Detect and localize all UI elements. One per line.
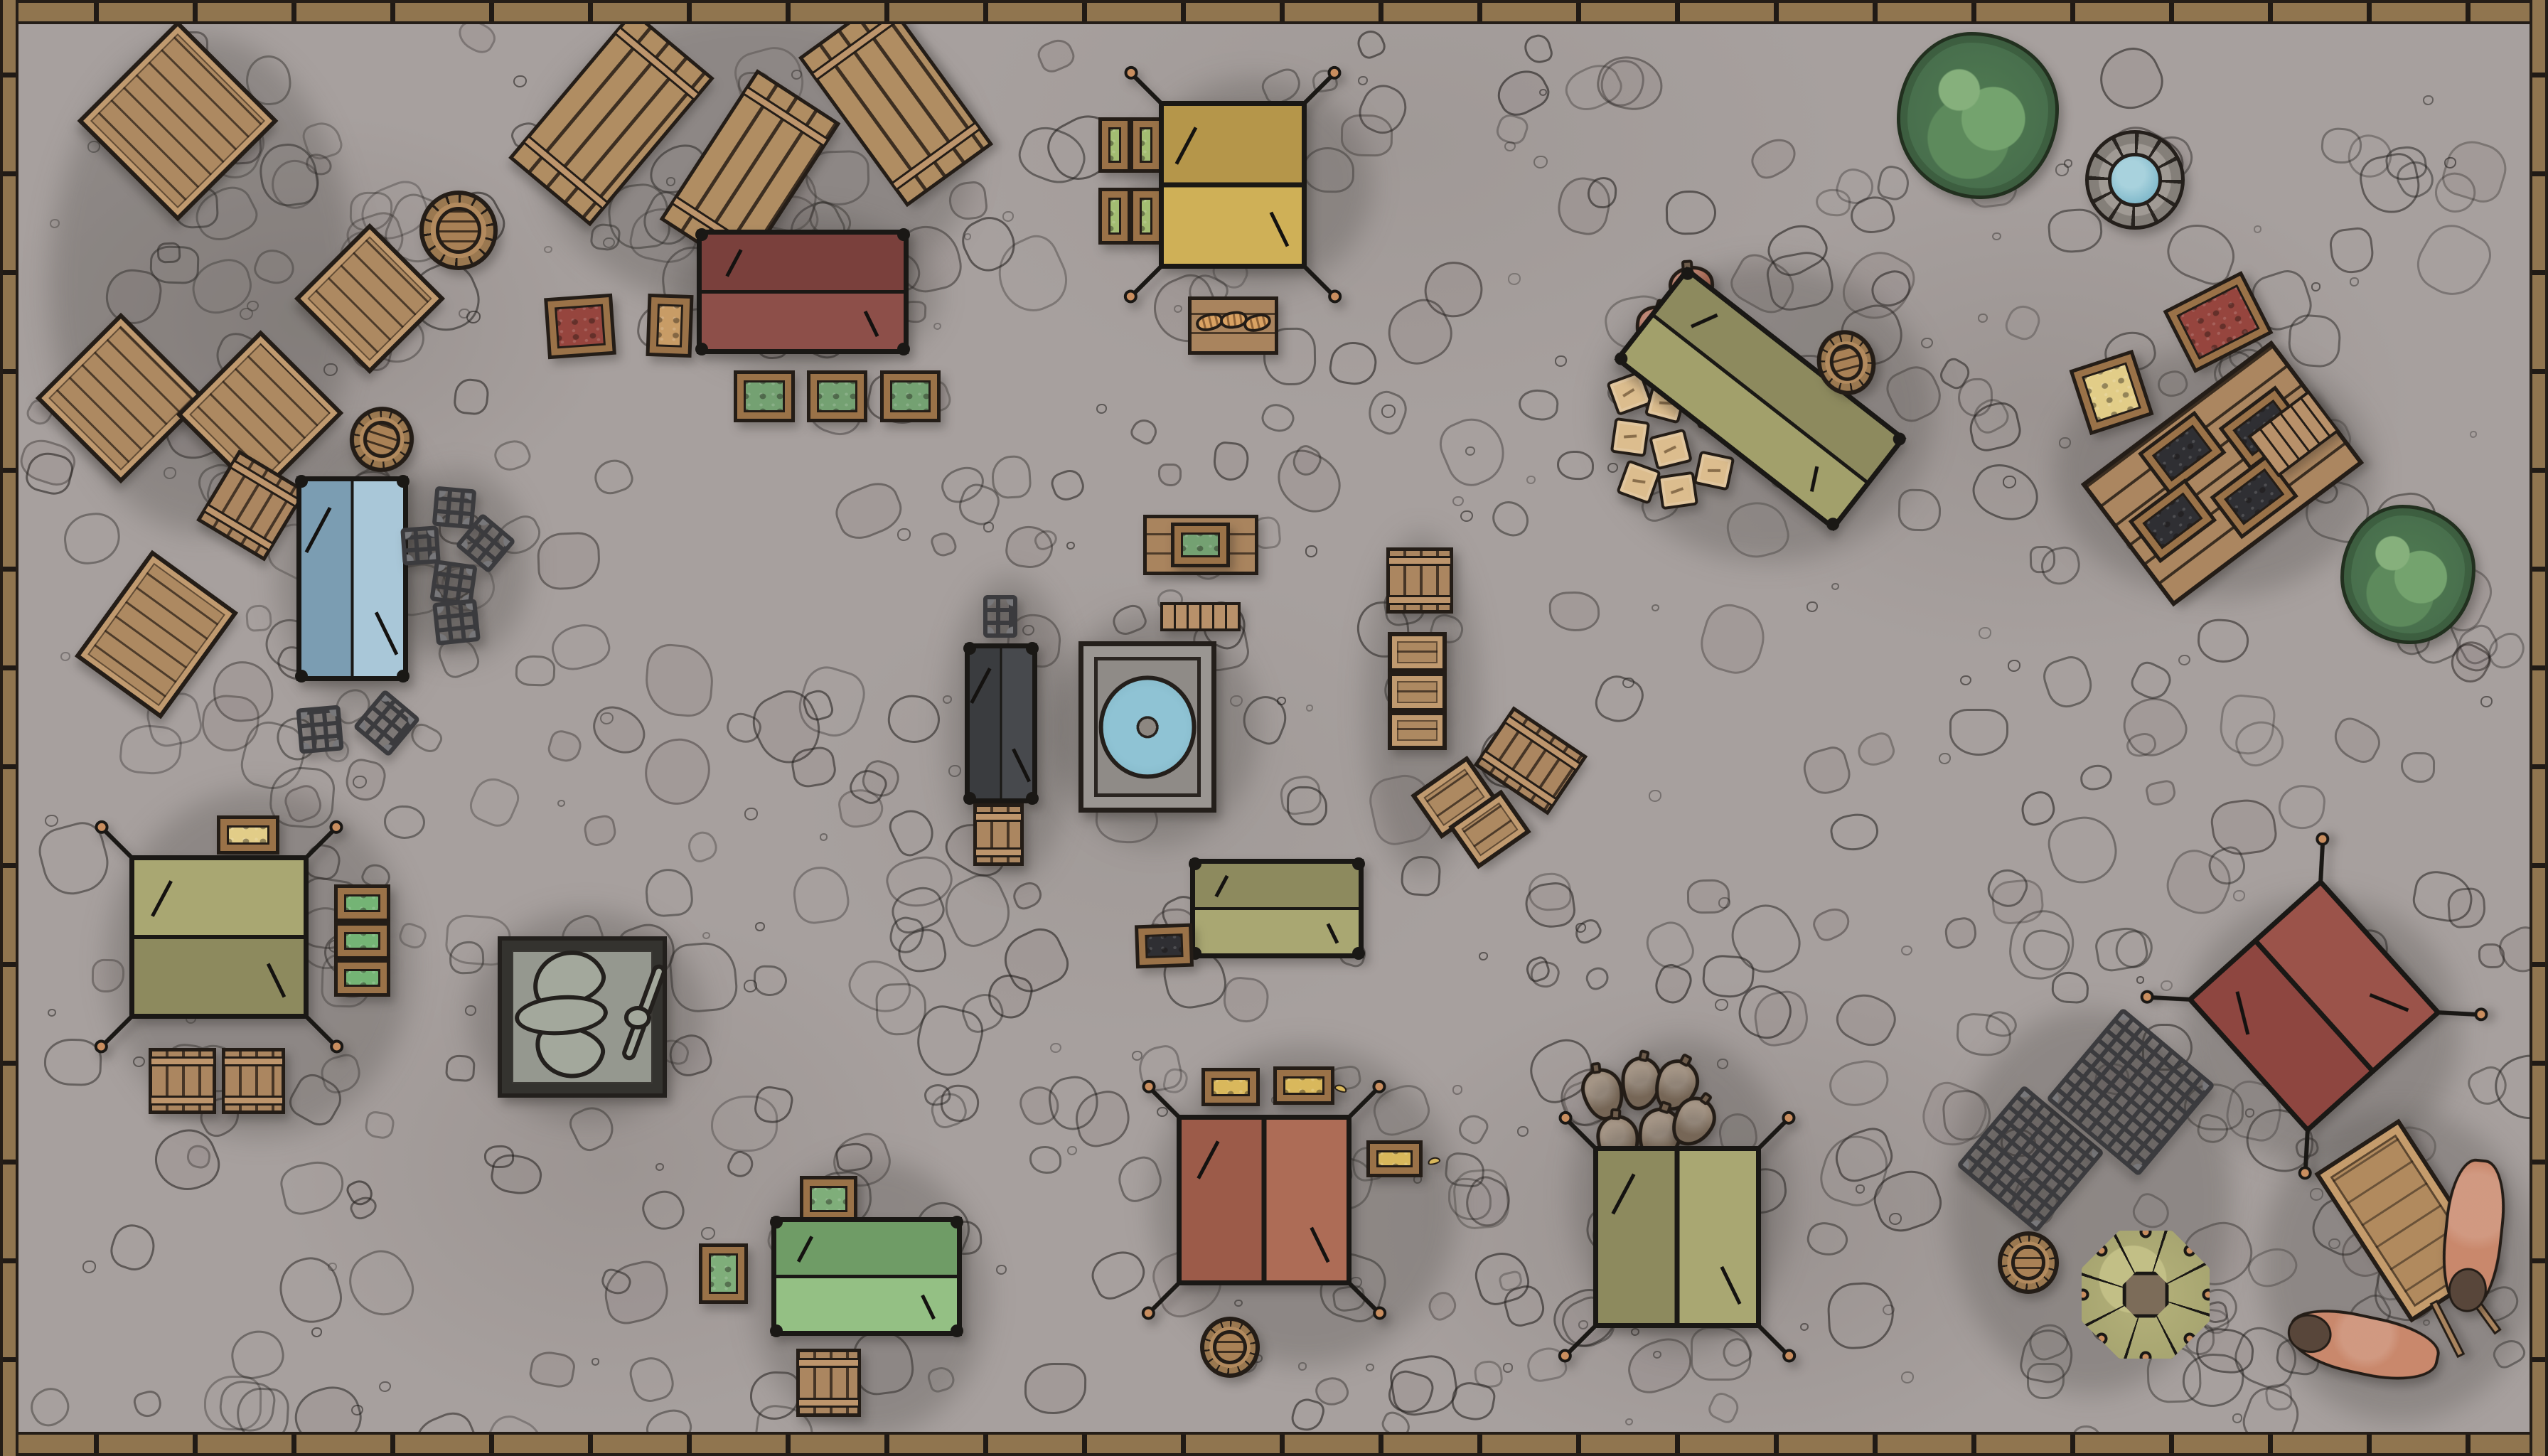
grape-crate bbox=[1130, 188, 1162, 245]
grape-crate bbox=[1098, 188, 1131, 245]
map-frame-top bbox=[0, 0, 2548, 24]
tent-pole bbox=[397, 670, 409, 682]
map-frame-left bbox=[0, 0, 18, 1456]
metal-grate bbox=[983, 595, 1017, 638]
metal-grate bbox=[296, 705, 343, 754]
tent-pole bbox=[897, 228, 910, 241]
bread-roll-crate bbox=[646, 294, 693, 358]
guy-rope bbox=[1132, 74, 1165, 107]
tent-pole bbox=[1352, 947, 1365, 960]
tent-pole bbox=[695, 343, 708, 355]
guy-rope bbox=[102, 828, 136, 862]
grape-crate bbox=[1098, 117, 1131, 173]
parasol-tip bbox=[2184, 1333, 2196, 1345]
tent-pole bbox=[1352, 857, 1365, 870]
greens-crate bbox=[1171, 523, 1230, 567]
metal-grate bbox=[400, 525, 441, 566]
wooden-pallet bbox=[1386, 547, 1453, 614]
bush-small bbox=[2340, 505, 2475, 644]
maroon-tent bbox=[697, 230, 909, 354]
coal-crate bbox=[1135, 924, 1194, 969]
storage-barrel bbox=[419, 191, 498, 270]
bean-crate bbox=[800, 1176, 857, 1222]
wooden-crate bbox=[1388, 711, 1447, 750]
stone-well bbox=[2085, 130, 2185, 230]
black-tent bbox=[965, 643, 1037, 803]
battle-map bbox=[0, 0, 2548, 1456]
wooden-crate bbox=[75, 550, 238, 719]
olive-tent-south bbox=[1593, 1146, 1761, 1328]
olive-tent-west bbox=[129, 855, 309, 1019]
tent-pole bbox=[951, 1216, 963, 1228]
guy-rope bbox=[1566, 1322, 1600, 1355]
wooden-pallet bbox=[796, 1349, 861, 1417]
bread-table bbox=[1188, 296, 1278, 355]
pepper-crate bbox=[807, 370, 867, 422]
greens-crate bbox=[334, 922, 390, 960]
tent-pole bbox=[951, 1324, 963, 1337]
guy-rope bbox=[1755, 1322, 1788, 1355]
tomato-crate bbox=[544, 294, 616, 359]
square-fountain bbox=[1078, 641, 1216, 813]
parasol bbox=[2082, 1231, 2210, 1359]
blue-tent bbox=[296, 476, 408, 681]
banana-crate bbox=[1201, 1068, 1260, 1106]
tent-pole bbox=[397, 475, 409, 488]
tent-pole bbox=[695, 228, 708, 241]
parasol-hub bbox=[2123, 1272, 2169, 1318]
grain-pouch bbox=[1657, 471, 1698, 510]
green-tent bbox=[771, 1217, 962, 1336]
round-barrel bbox=[1998, 1231, 2059, 1294]
plank-bench bbox=[1160, 602, 1241, 631]
wooden-crate bbox=[1388, 672, 1447, 712]
pepper-crate bbox=[734, 370, 795, 422]
object-layer bbox=[0, 0, 2548, 1456]
guy-rope bbox=[2318, 842, 2325, 885]
map-frame-bottom bbox=[0, 1432, 2548, 1456]
water-basin bbox=[1099, 675, 1197, 778]
tent-pole bbox=[295, 475, 308, 488]
bush-large bbox=[1897, 32, 2059, 199]
metal-grate bbox=[432, 599, 481, 646]
tent-pole bbox=[295, 670, 308, 682]
grain-pouch bbox=[1610, 417, 1650, 457]
wooden-pallet bbox=[149, 1048, 216, 1114]
round-barrel bbox=[1200, 1317, 1260, 1378]
olive-tent-center bbox=[1190, 859, 1364, 958]
bean-crate bbox=[699, 1243, 748, 1304]
carving-em-mid bbox=[513, 992, 609, 1039]
metal-grate bbox=[432, 486, 477, 530]
banana-crate bbox=[1366, 1140, 1423, 1177]
terracotta-tent bbox=[1177, 1115, 1351, 1285]
map-frame-right bbox=[2530, 0, 2548, 1456]
grape-crate bbox=[1130, 117, 1162, 173]
carving-em-ring bbox=[624, 1006, 651, 1029]
greens-crate bbox=[334, 884, 390, 922]
wooden-pallet bbox=[222, 1048, 285, 1114]
tent-pole bbox=[770, 1216, 783, 1228]
tent-pole bbox=[1026, 642, 1039, 655]
tent-pole bbox=[770, 1324, 783, 1337]
banana-crate bbox=[1273, 1066, 1334, 1105]
tent-pole bbox=[1026, 792, 1039, 805]
carved-stone-slab bbox=[498, 936, 667, 1098]
tent-pole bbox=[897, 343, 910, 355]
tent-pole bbox=[963, 642, 976, 655]
goods-crate bbox=[2129, 478, 2217, 563]
wooden-pallet bbox=[973, 803, 1024, 866]
potato-crate bbox=[217, 815, 279, 855]
guy-rope bbox=[1132, 262, 1165, 296]
greens-crate bbox=[334, 959, 390, 997]
gold-tent bbox=[1159, 101, 1307, 269]
wooden-crate bbox=[1388, 632, 1447, 673]
grain-pouch bbox=[1693, 450, 1735, 491]
tent-pole bbox=[1189, 857, 1201, 870]
pepper-crate bbox=[880, 370, 941, 422]
guy-rope bbox=[1150, 1088, 1183, 1121]
